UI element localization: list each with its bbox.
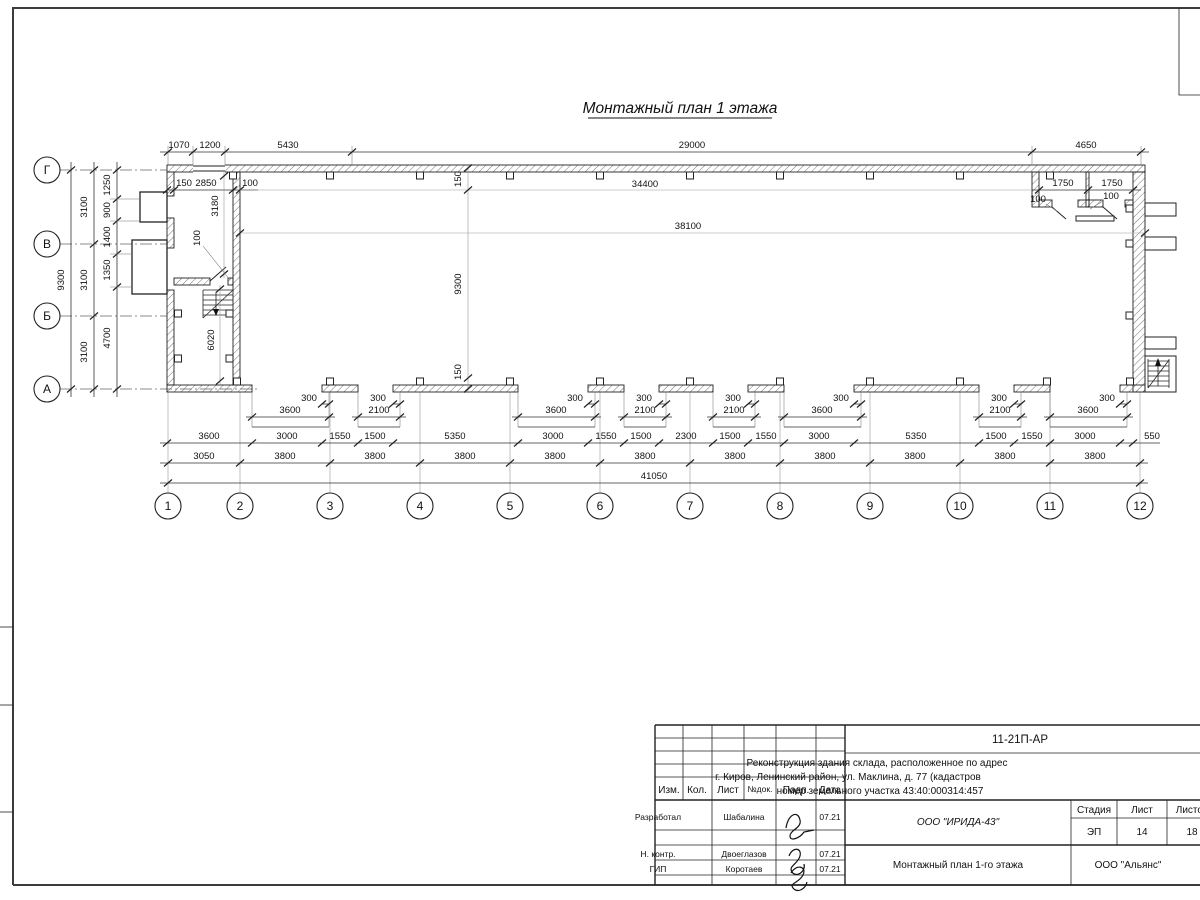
building-walls — [167, 164, 1145, 392]
dim-top: 1070 1200 5430 29000 4650 — [160, 140, 1149, 165]
dim-label: 3000 — [542, 431, 563, 442]
dim-label: 300 — [636, 393, 652, 404]
page-title: Монтажный план 1 этажа — [583, 100, 778, 117]
dim-label: 3800 — [994, 451, 1015, 462]
axis-label: 1 — [165, 499, 172, 513]
dim-label: 4700 — [102, 327, 113, 348]
dim-label: 3800 — [544, 451, 565, 462]
dim-label: 100 — [1103, 191, 1119, 202]
dim-label: 2850 — [195, 178, 216, 189]
dim-label: 3800 — [274, 451, 295, 462]
dim-label: 5430 — [277, 140, 298, 151]
dim-label: 3600 — [545, 405, 566, 416]
dim-label: 3800 — [454, 451, 475, 462]
dim-label: 3600 — [279, 405, 300, 416]
stamp-col-header: Изм. — [658, 785, 679, 796]
dim-label: 150 — [176, 178, 192, 189]
project-description-line1: Реконструкция здания склада, расположенн… — [747, 758, 1008, 769]
stamp-col-header: №док. — [748, 784, 773, 794]
stamp-date: 07.21 — [819, 812, 841, 822]
stair-arrow-up — [1155, 358, 1161, 366]
drawing-sheet: Монтажный план 1 этажа — [0, 0, 1200, 900]
dim-label: 3800 — [904, 451, 925, 462]
axis-label: 8 — [777, 499, 784, 513]
axis-label: 9 — [867, 499, 874, 513]
stamp-role: ГИП — [650, 864, 667, 874]
dim-label: 3000 — [808, 431, 829, 442]
dim-label: 1750 — [1052, 178, 1073, 189]
signature-2 — [789, 849, 804, 874]
dim-label: 100 — [192, 230, 203, 246]
dim-label: 1550 — [595, 431, 616, 442]
dim-label: 3600 — [811, 405, 832, 416]
stamp-role: Разработал — [635, 812, 681, 822]
stamp-col-header: Подп. — [783, 785, 810, 796]
sheet-name: Монтажный план 1-го этажа — [893, 860, 1024, 871]
axis-label: 12 — [1133, 499, 1147, 513]
dim-label: 2300 — [675, 431, 696, 442]
stage-header: Стадия — [1077, 805, 1111, 816]
dim-label: 100 — [1030, 194, 1046, 205]
dim-label: 300 — [301, 393, 317, 404]
dim-label: 3100 — [79, 341, 90, 362]
dim-hall-lower: 38100 — [236, 221, 1149, 237]
dim-label: 5350 — [905, 431, 926, 442]
dim-label: 900 — [102, 202, 113, 218]
title-block: 11-21П-АР Реконструкция здания склада, р… — [635, 725, 1200, 890]
stamp-date: 07.21 — [819, 864, 841, 874]
axis-label: 2 — [237, 499, 244, 513]
stamp-col-header: Кол. — [687, 785, 707, 796]
dim-row-openings: 3600 3000 1550 1500 5350 3000 1550 1500 … — [160, 431, 1160, 447]
dim-label: 1750 — [1101, 178, 1122, 189]
dim-label: 1350 — [102, 259, 113, 280]
dim-label: 150 — [453, 364, 464, 380]
stamp-name: Двоеглазов — [721, 849, 767, 859]
axis-label: 3 — [327, 499, 334, 513]
dim-label: 3600 — [198, 431, 219, 442]
dim-label: 300 — [1099, 393, 1115, 404]
axis-label: 4 — [417, 499, 424, 513]
dim-label: 1070 — [168, 140, 189, 151]
dim-label: 9300 — [453, 273, 464, 294]
dim-mid-vertical: 150 9300 150 — [453, 165, 472, 393]
dim-label: 3800 — [634, 451, 655, 462]
stamp-col-header: Лист — [717, 785, 739, 796]
axis-label: 5 — [507, 499, 514, 513]
company-name: ООО "Альянс" — [1095, 860, 1162, 871]
dim-gates: 3600 300 2100 300 3600 300 2100 300 2100… — [246, 392, 1133, 427]
porch-left-1 — [140, 192, 167, 222]
stamp-name: Коротаев — [726, 864, 763, 874]
dim-label: 34400 — [632, 179, 658, 190]
dim-label: 3000 — [1074, 431, 1095, 442]
dim-label: 150 — [453, 171, 464, 187]
dim-label: 9300 — [56, 269, 67, 290]
sheets-total: 18 — [1186, 827, 1198, 838]
dim-label: 29000 — [679, 140, 705, 151]
dim-label: 3800 — [364, 451, 385, 462]
dim-row-total: 41050 — [160, 471, 1148, 487]
stamp-name: Шабалина — [723, 812, 764, 822]
dim-label: 5350 — [444, 431, 465, 442]
dim-label: 1550 — [755, 431, 776, 442]
column-markers — [175, 172, 1134, 385]
dim-label: 38100 — [675, 221, 701, 232]
axis-label: В — [43, 237, 51, 251]
dim-label: 1500 — [630, 431, 651, 442]
dim-label: 1550 — [1021, 431, 1042, 442]
ramp-right-2 — [1145, 237, 1176, 250]
axis-bubbles — [34, 157, 1153, 519]
porches-and-exterior — [132, 192, 1176, 392]
dim-label: 3800 — [1084, 451, 1105, 462]
dim-label: 300 — [370, 393, 386, 404]
dim-label: 1500 — [719, 431, 740, 442]
dim-label: 1200 — [199, 140, 220, 151]
dim-label: 3180 — [210, 195, 221, 216]
axis-label: 7 — [687, 499, 694, 513]
plan-title-group: Монтажный план 1 этажа — [583, 100, 778, 118]
design-org: ООО "ИРИДА-43" — [917, 817, 1000, 828]
dim-label: 3800 — [814, 451, 835, 462]
sheet-number: 14 — [1136, 827, 1148, 838]
dim-label: 3600 — [1077, 405, 1098, 416]
axis-label: Г — [44, 163, 51, 177]
dim-label: 4650 — [1075, 140, 1096, 151]
dim-label: 1550 — [329, 431, 350, 442]
sheet-header: Лист — [1131, 805, 1153, 816]
axis-label: Б — [43, 309, 51, 323]
signature-1 — [786, 814, 814, 839]
ramp-right-3 — [1145, 337, 1176, 349]
format-box — [1179, 8, 1200, 95]
dim-label: 2100 — [634, 405, 655, 416]
signature-3 — [791, 867, 807, 890]
axis-label: 10 — [953, 499, 967, 513]
porch-left-2 — [132, 240, 167, 294]
dim-label: 300 — [833, 393, 849, 404]
dim-label: 2100 — [368, 405, 389, 416]
ramp-right-1 — [1145, 203, 1176, 216]
axis-label: 11 — [1044, 499, 1057, 513]
axis-label: А — [43, 382, 51, 396]
axis-label: 6 — [597, 499, 604, 513]
dim-row-axes: 3050 3800 3800 3800 3800 3800 3800 3800 … — [160, 451, 1148, 467]
project-description-line2: г. Киров, Ленинский район, ул. Маклина, … — [715, 772, 981, 783]
document-code: 11-21П-АР — [992, 734, 1048, 746]
dim-label: 1500 — [985, 431, 1006, 442]
dim-upper-inner: 150 2850 100 34400 1750 1750 100 100 — [163, 178, 1141, 211]
dim-label: 300 — [567, 393, 583, 404]
dim-label: 1250 — [102, 174, 113, 195]
dim-left: 9300 3100 3100 3100 1250 900 1400 1350 4… — [56, 162, 140, 397]
dim-label: 3100 — [79, 196, 90, 217]
dim-label: 100 — [242, 178, 258, 189]
dim-label: 300 — [991, 393, 1007, 404]
dim-label: 3050 — [193, 451, 214, 462]
dim-label: 3000 — [276, 431, 297, 442]
dim-label: 300 — [725, 393, 741, 404]
stamp-date: 07.21 — [819, 849, 841, 859]
stamp-col-header: Дата — [819, 785, 842, 796]
dim-label: 2100 — [723, 405, 744, 416]
dim-label: 41050 — [641, 471, 667, 482]
dim-label: 1400 — [102, 226, 113, 247]
stage-value: ЭП — [1087, 827, 1101, 838]
sheets-header: Листов — [1176, 805, 1200, 816]
dim-label: 2100 — [989, 405, 1010, 416]
dim-label: 550 — [1144, 431, 1160, 442]
dim-label: 6020 — [206, 329, 217, 350]
floor-plan-drawing: Монтажный план 1 этажа — [0, 0, 1200, 900]
dim-label: 3800 — [724, 451, 745, 462]
dim-label: 3100 — [79, 269, 90, 290]
stamp-role: Н. контр. — [640, 849, 675, 859]
dim-label: 1500 — [364, 431, 385, 442]
